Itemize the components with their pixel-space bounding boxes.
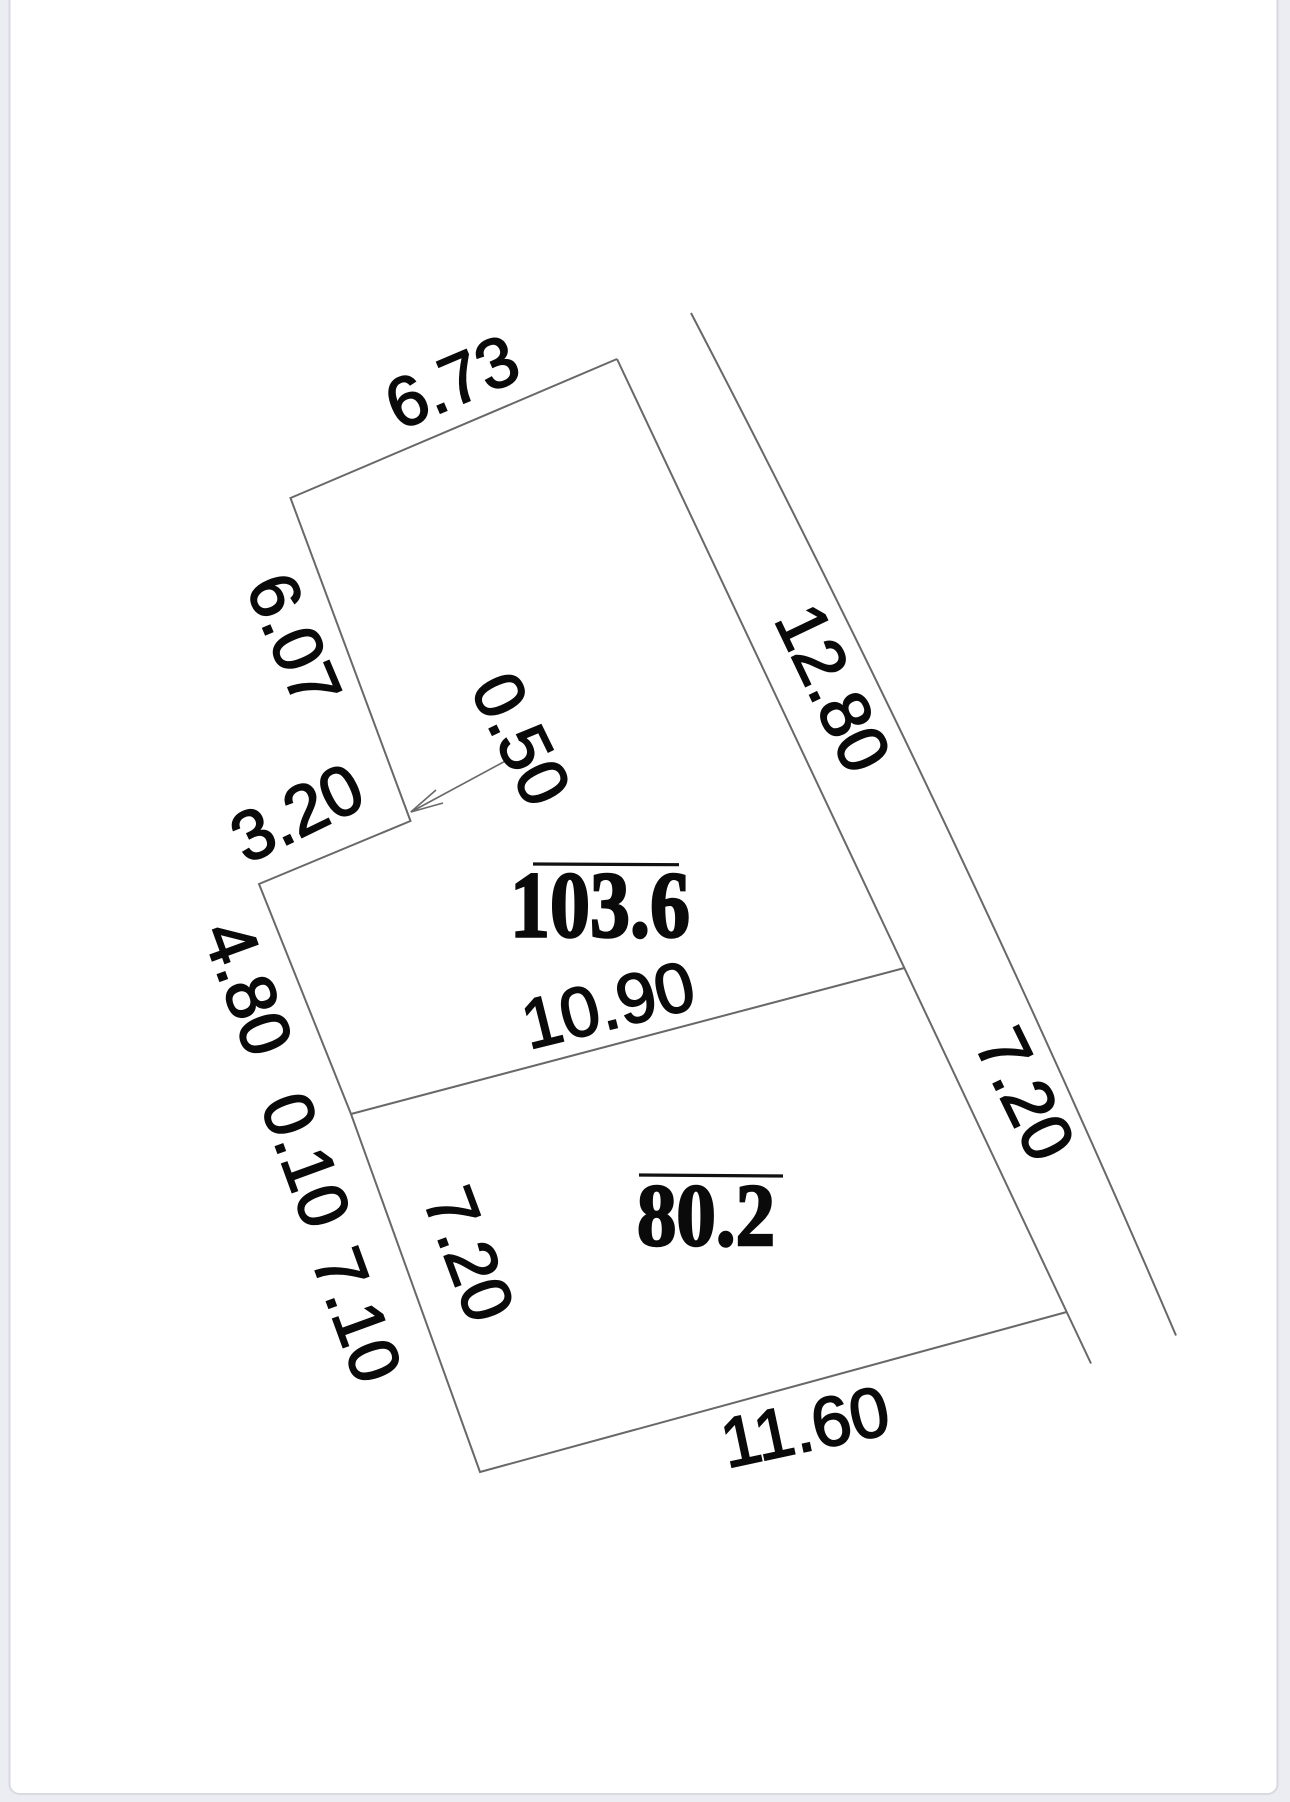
svg-text:103.6: 103.6 xyxy=(510,854,690,958)
svg-text:80.2: 80.2 xyxy=(637,1167,775,1265)
